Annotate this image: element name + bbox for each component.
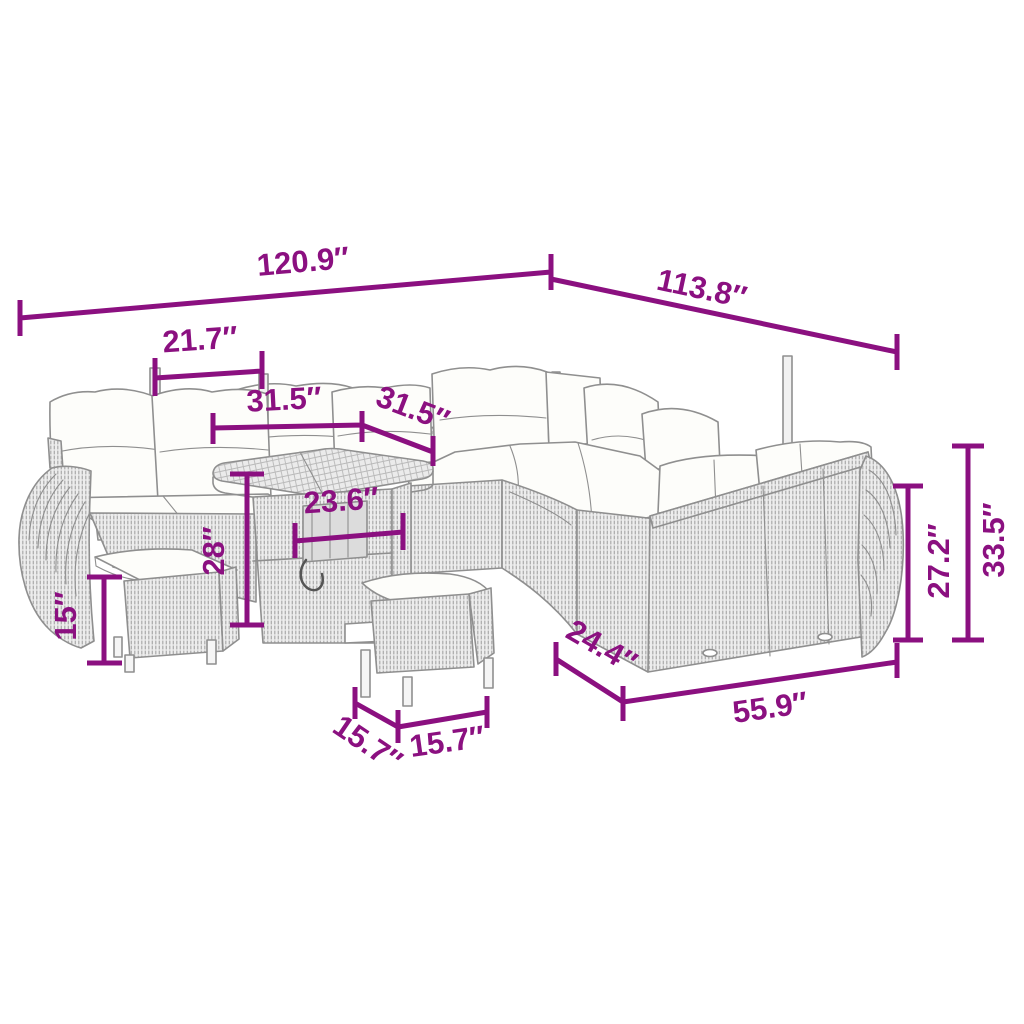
stool-leg <box>207 640 216 664</box>
dim-label-table-inner-width: 23.6″ <box>302 480 380 520</box>
furniture-dimension-diagram: 120.9″ 113.8″ 21.7″ 31.5″ 31.5″ 23.6″ 28… <box>0 0 1024 1024</box>
furniture-line-art <box>19 356 903 706</box>
dim-label-seat-width: 21.7″ <box>161 319 239 359</box>
stool-front <box>361 573 494 706</box>
stool-leg <box>403 677 412 706</box>
dim-label-sofa-total-height: 33.5″ <box>976 502 1011 577</box>
stool-leg <box>114 637 122 657</box>
foot-cap <box>703 650 717 657</box>
stool-leg <box>361 650 370 697</box>
diagram-canvas: 120.9″ 113.8″ 21.7″ 31.5″ 31.5″ 23.6″ 28… <box>0 0 1024 1024</box>
back-strap <box>783 356 792 446</box>
dim-label-sofa-width: 55.9″ <box>730 685 809 730</box>
dim-label-overall-width-left: 120.9″ <box>255 240 350 283</box>
dim-label-stool-height: 15″ <box>48 591 83 640</box>
stool-leg <box>125 655 134 672</box>
stool-body <box>371 594 474 673</box>
armrest <box>48 438 63 470</box>
dim-label-table-height: 28″ <box>196 526 231 575</box>
foot-cap <box>818 634 832 641</box>
dim-label-sofa-back-height: 27.2″ <box>921 523 956 598</box>
dim-label-table-top-width: 31.5″ <box>246 380 323 419</box>
dim-label-overall-width-right: 113.8″ <box>654 262 750 315</box>
right-sofa <box>648 441 903 672</box>
stool-leg <box>484 658 493 688</box>
